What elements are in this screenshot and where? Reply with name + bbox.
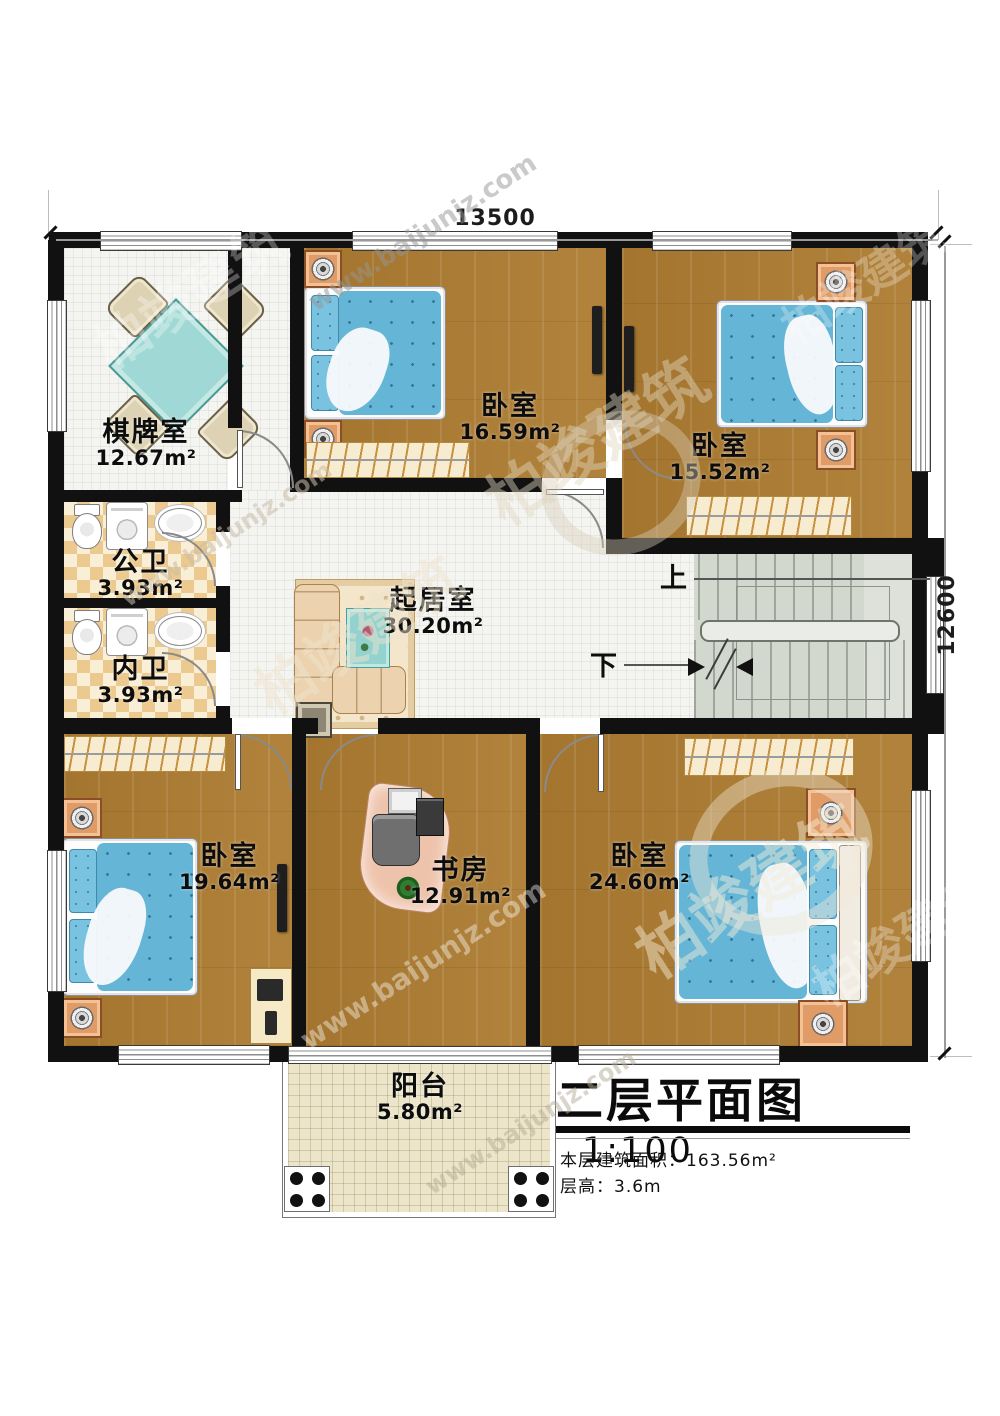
door-leaf-bedroom-1 bbox=[546, 489, 604, 495]
toilet-icon bbox=[72, 513, 102, 549]
nightstand bbox=[806, 788, 856, 838]
column-dot bbox=[312, 1194, 325, 1207]
pillow bbox=[835, 365, 863, 421]
stairs-down-leader-line bbox=[624, 664, 688, 666]
window-top-chess bbox=[100, 231, 242, 251]
wall-bath-right-a bbox=[216, 490, 230, 532]
extension-line bbox=[930, 244, 972, 245]
column-dot bbox=[312, 1172, 325, 1185]
column-dot bbox=[536, 1172, 549, 1185]
pillow bbox=[809, 925, 837, 995]
wall-bed1-bed2-a bbox=[606, 248, 622, 420]
window-bottom-bedroom3 bbox=[118, 1045, 270, 1065]
stairs-up-label: 上 bbox=[660, 556, 687, 595]
column-dot bbox=[514, 1194, 527, 1207]
room-label-living-room: 起居室30.20m² bbox=[348, 586, 518, 638]
pillow bbox=[835, 307, 863, 363]
lamp-icon bbox=[819, 801, 843, 825]
sink-icon bbox=[158, 616, 202, 646]
washing-machine-icon bbox=[106, 608, 148, 656]
lamp-icon bbox=[70, 806, 94, 830]
dimension-top-value: 13500 bbox=[420, 206, 570, 231]
washing-machine-icon bbox=[106, 502, 148, 550]
floor-height-note: 层高：3.6m bbox=[560, 1172, 662, 1197]
pillow bbox=[311, 295, 339, 351]
tv bbox=[624, 326, 634, 392]
dimension-line-top bbox=[56, 239, 938, 241]
wardrobe bbox=[306, 442, 470, 478]
extension-line bbox=[930, 1056, 972, 1057]
window-left-bedroom3 bbox=[47, 850, 67, 992]
column-dot bbox=[290, 1172, 303, 1185]
bed bbox=[716, 300, 868, 428]
stair-direction-arrow-icon bbox=[688, 658, 705, 676]
lamp-icon bbox=[811, 1012, 835, 1036]
stairs-up-leader-line bbox=[694, 578, 930, 580]
nightstand bbox=[816, 430, 856, 470]
room-label-balcony: 阳台5.80m² bbox=[335, 1072, 505, 1124]
room-label-bedroom-1: 卧室16.59m² bbox=[425, 392, 595, 444]
wall-bed1-bed2-b bbox=[606, 480, 622, 554]
lamp-icon bbox=[311, 257, 335, 281]
balcony-sliding-door bbox=[288, 1046, 552, 1064]
room-label-private-bath: 内卫3.93m² bbox=[58, 655, 223, 707]
room-label-bedroom-3: 卧室19.64m² bbox=[142, 842, 317, 894]
door-leaf-chess-room bbox=[237, 430, 243, 488]
room-label-study: 书房12.91m² bbox=[378, 856, 543, 908]
nightstand bbox=[816, 262, 856, 302]
wall-main-d bbox=[600, 718, 912, 734]
dimension-right-value: 12600 bbox=[935, 545, 965, 685]
nightstand bbox=[304, 250, 342, 288]
floor-plan-canvas: 上 下 棋牌室12.67m² 卧室16.59m² bbox=[0, 0, 1000, 1416]
wall-bedroom2-bottom bbox=[622, 538, 912, 554]
stereo-icon bbox=[257, 979, 283, 1001]
drawing-title: 二层平面图 bbox=[556, 1074, 806, 1129]
room-label-bedroom-2: 卧室15.52m² bbox=[635, 432, 805, 484]
lamp-icon bbox=[824, 438, 848, 462]
computer-tower-icon bbox=[416, 798, 444, 836]
speaker-icon bbox=[265, 1011, 277, 1035]
room-label-chess: 棋牌室12.67m² bbox=[56, 418, 236, 470]
wall-corridor-right bbox=[290, 248, 304, 492]
door-leaf-bedroom-4 bbox=[598, 734, 604, 792]
column-post bbox=[508, 1166, 554, 1212]
door-leaf-bedroom-3 bbox=[235, 734, 241, 790]
room-label-bedroom-4: 卧室24.60m² bbox=[552, 842, 727, 894]
window-right-bedroom4 bbox=[911, 790, 931, 962]
stairs-down-label: 下 bbox=[590, 644, 617, 683]
window-top-bedroom1 bbox=[352, 231, 558, 251]
nightstand bbox=[798, 1000, 848, 1048]
title-underline-thin bbox=[556, 1138, 910, 1139]
headboard bbox=[839, 845, 861, 1001]
stair-direction-arrow-icon bbox=[736, 658, 753, 676]
wall-main-a bbox=[48, 718, 232, 734]
column-dot bbox=[290, 1194, 303, 1207]
column-dot bbox=[514, 1172, 527, 1185]
sofa bbox=[332, 666, 406, 714]
stair-rail bbox=[700, 620, 900, 642]
wall-main-b bbox=[292, 718, 318, 734]
wardrobe bbox=[686, 496, 852, 536]
nightstand bbox=[62, 998, 102, 1038]
window-top-bedroom2 bbox=[652, 231, 792, 251]
window-left-chess bbox=[47, 300, 67, 432]
wall-chess-right bbox=[228, 248, 242, 428]
pillow bbox=[809, 849, 837, 919]
nightstand bbox=[62, 798, 102, 838]
title-underline bbox=[556, 1126, 910, 1133]
tv bbox=[592, 306, 602, 374]
lamp-icon bbox=[70, 1006, 94, 1030]
stair-inner-outline bbox=[736, 586, 890, 700]
floor-area-note: 本层建筑面积：163.56m² bbox=[560, 1146, 777, 1171]
toilet-icon bbox=[72, 619, 102, 655]
dimension-tick bbox=[929, 225, 943, 239]
column-dot bbox=[536, 1194, 549, 1207]
wall-bedroom1-bottom bbox=[290, 478, 542, 492]
lamp-icon bbox=[824, 270, 848, 294]
media-cabinet bbox=[250, 968, 292, 1044]
wardrobe bbox=[684, 738, 854, 776]
wall-main-c bbox=[378, 718, 540, 734]
window-right-bedroom2 bbox=[911, 300, 931, 472]
room-label-public-bath: 公卫3.93m² bbox=[58, 548, 223, 600]
pillow bbox=[69, 849, 97, 913]
title-block: 二层平面图1:100 本层建筑面积：163.56m² 层高：3.6m bbox=[556, 1062, 916, 1192]
wardrobe bbox=[64, 736, 226, 772]
column-post bbox=[284, 1166, 330, 1212]
